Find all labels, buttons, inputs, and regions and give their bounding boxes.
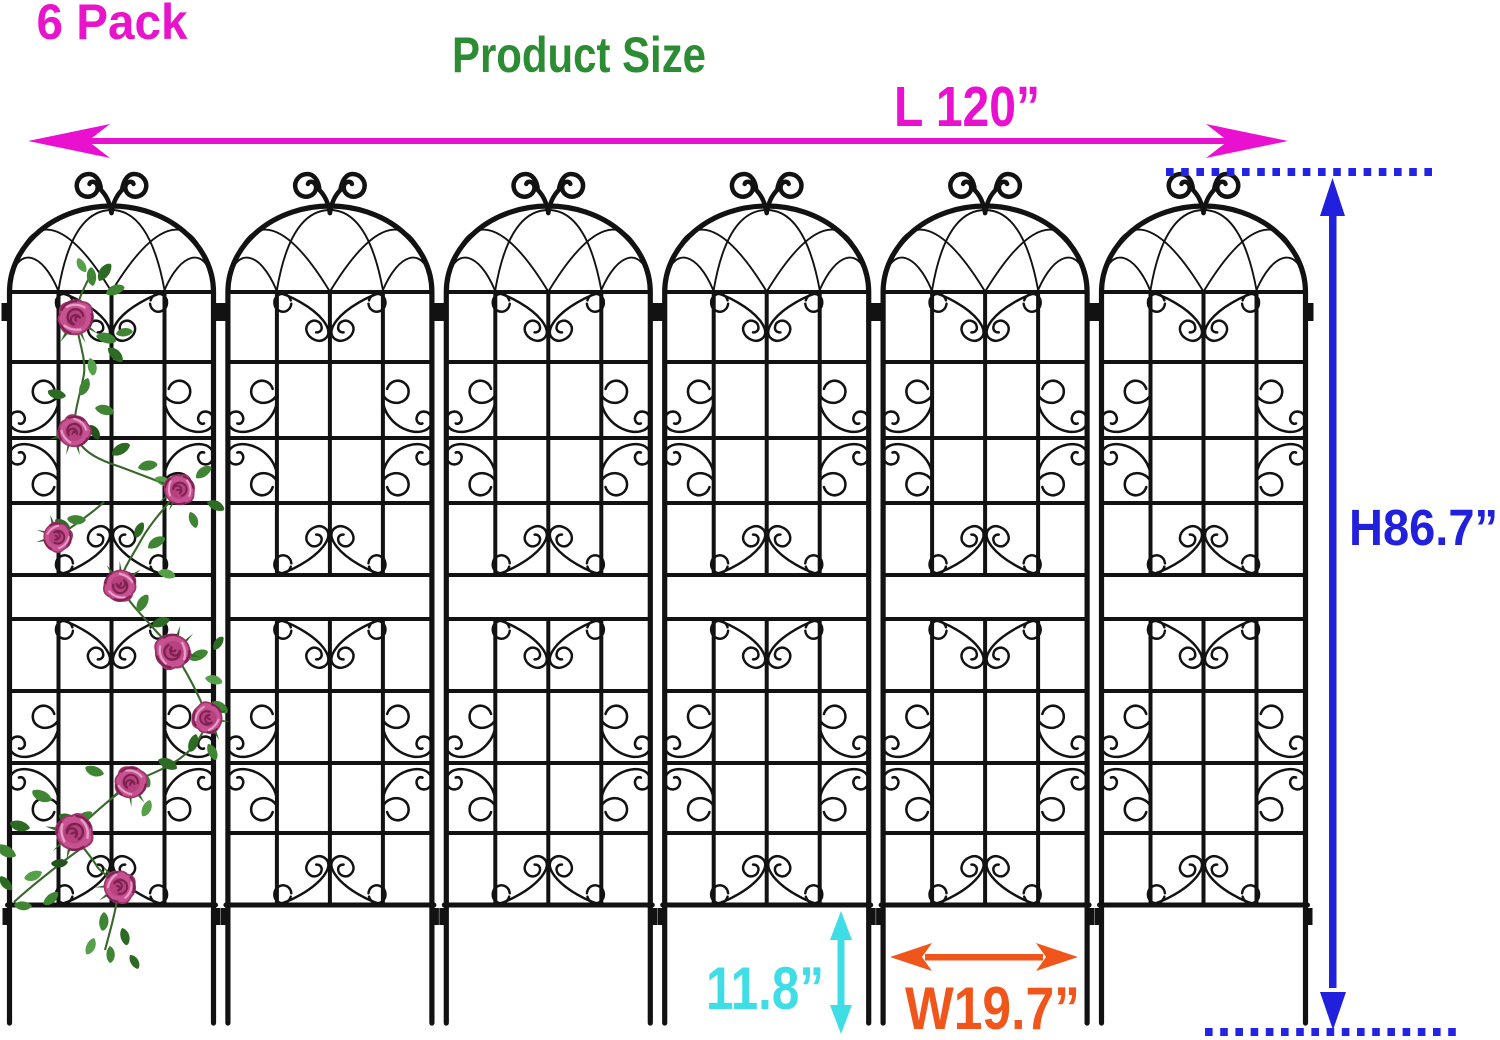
svg-text:L 120”: L 120”: [894, 75, 1040, 139]
svg-text:Product Size: Product Size: [452, 27, 706, 83]
svg-text:11.8”: 11.8”: [706, 955, 824, 1022]
svg-text:H86.7”: H86.7”: [1349, 499, 1498, 556]
svg-text:W19.7”: W19.7”: [905, 975, 1080, 1040]
svg-text:6 Pack: 6 Pack: [37, 0, 188, 50]
